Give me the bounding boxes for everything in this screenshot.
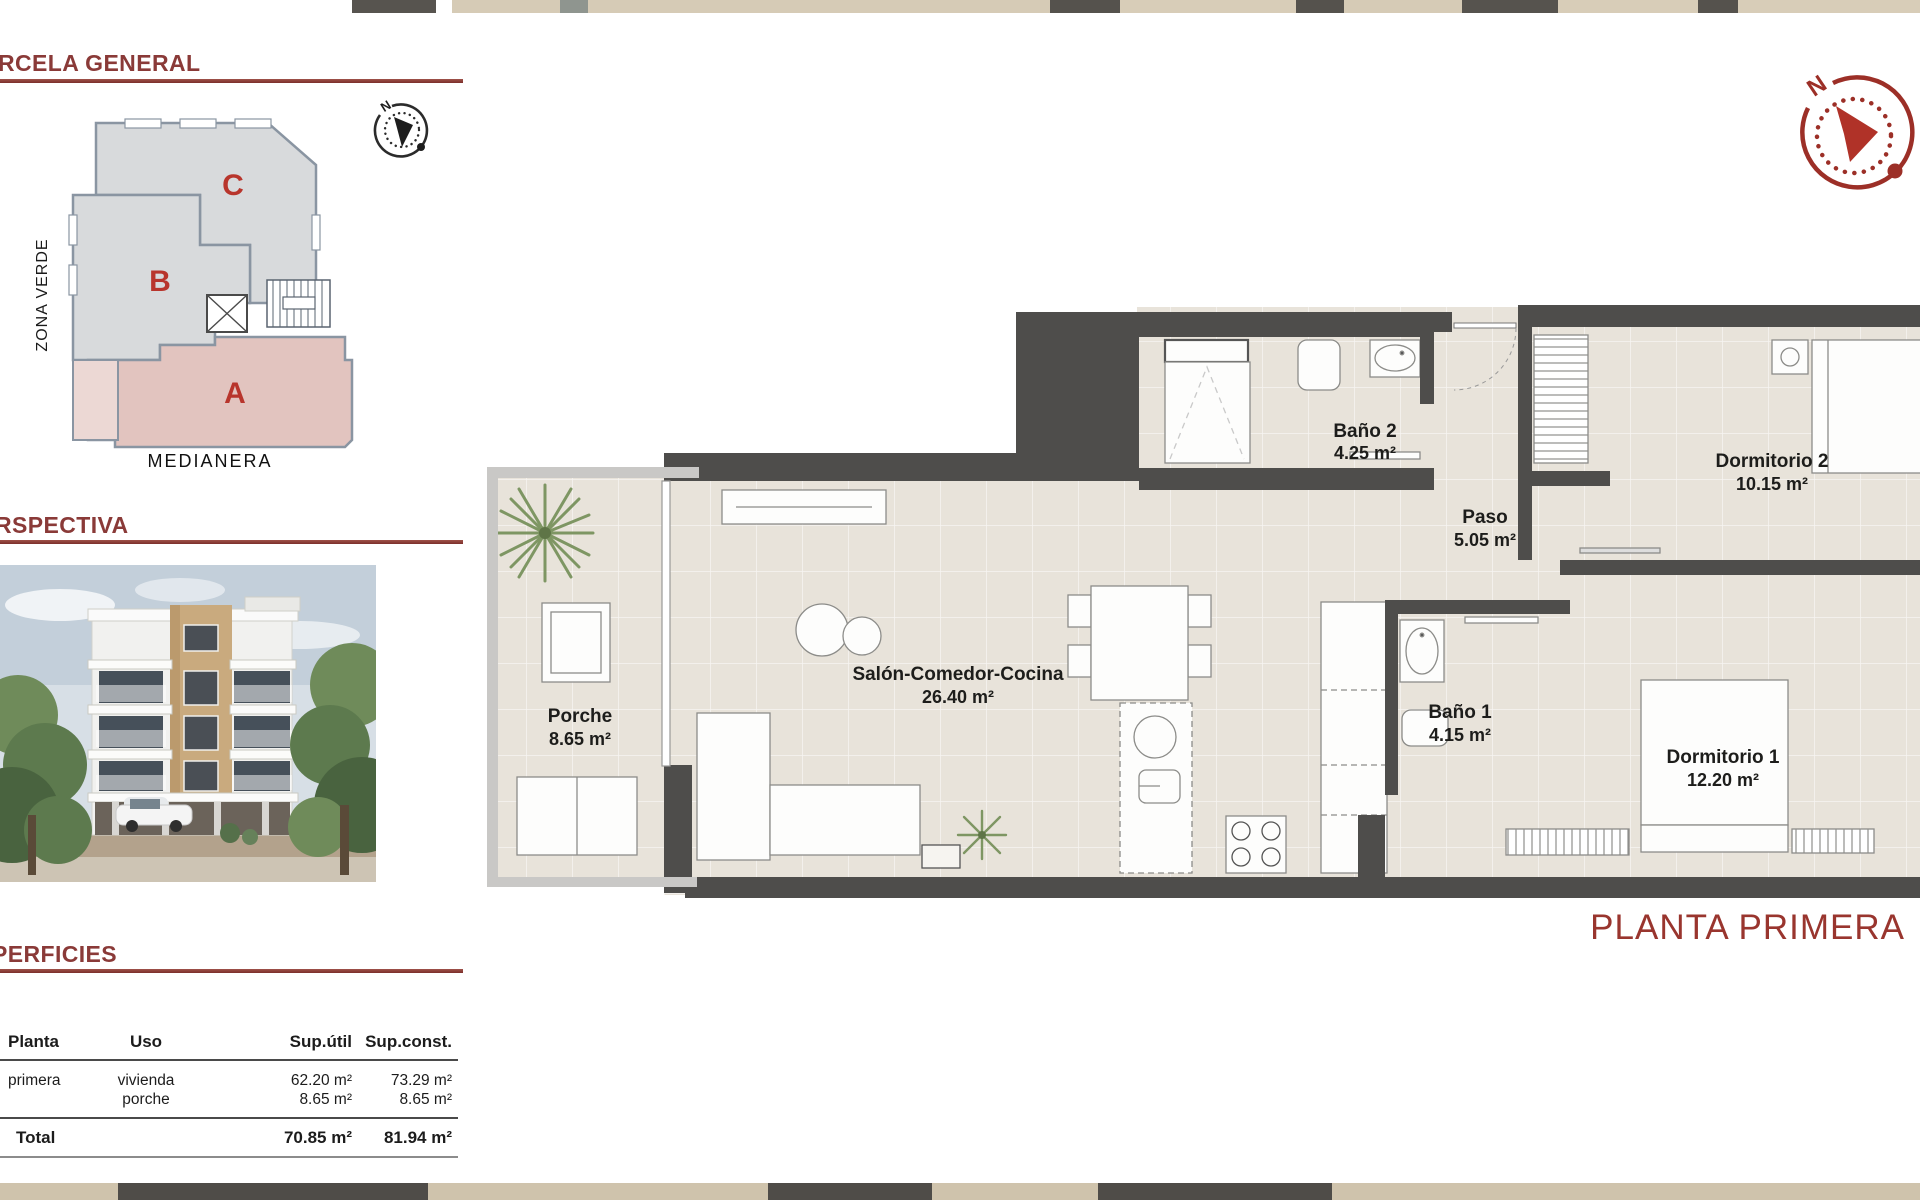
sideboard [722, 490, 886, 524]
table-row: primera vivienda 62.20 m² 73.29 m² [0, 1061, 458, 1090]
divider-perspectiva [0, 540, 463, 544]
section-title-parcela-general: RCELA GENERAL [0, 50, 200, 77]
total-sup-const: 81.94 m² [352, 1128, 455, 1148]
superficies-table: Planta Uso Sup.útil Sup.const. primera v… [0, 1032, 458, 1158]
bath2-shower [1165, 362, 1250, 463]
bath2-cabinet [1165, 340, 1248, 362]
divider-superficies [0, 969, 463, 973]
bottom-edge-plan-sliver [0, 1183, 1920, 1200]
cell-sup-const: 73.29 m² [352, 1071, 455, 1090]
section-title-perspectiva: RSPECTIVA [0, 512, 129, 539]
room-label-paso: Paso [1462, 507, 1507, 528]
cell-uso: vivienda [90, 1071, 202, 1090]
photo-building [88, 597, 300, 835]
site-elevator [207, 295, 247, 332]
site-window [235, 119, 271, 128]
room-area-bath2: 4.25 m² [1334, 443, 1396, 463]
site-window [312, 215, 320, 250]
bath1-towel-rail [1465, 617, 1538, 623]
bedroom1-window [1792, 829, 1874, 853]
room-label-bath2: Baño 2 [1333, 421, 1396, 442]
brochure-page: RCELA GENERAL [0, 0, 1920, 1200]
col-header-sup-util: Sup.útil [202, 1032, 352, 1052]
total-spacer [90, 1128, 202, 1148]
porche-palm-tree [497, 485, 593, 581]
site-block-a-wing [73, 360, 118, 440]
bedroom2-nightstand [1772, 340, 1808, 374]
room-label-porche: Porche [548, 706, 612, 727]
doormat [922, 845, 960, 868]
site-window [69, 265, 77, 295]
wardrobe [1534, 335, 1588, 463]
salon-plant [958, 811, 1006, 859]
porche-lounge [517, 777, 637, 855]
round-table [796, 604, 848, 656]
top-edge-plan-sliver [0, 0, 1920, 13]
room-area-salon: 26.40 m² [922, 687, 994, 707]
perspective-photo [0, 565, 376, 882]
terrace-slider [662, 481, 670, 766]
table-header-row: Planta Uso Sup.útil Sup.const. [0, 1032, 458, 1061]
site-label-c: C [222, 169, 244, 202]
col-header-planta: Planta [0, 1032, 90, 1052]
col-header-uso: Uso [90, 1032, 202, 1052]
bath1-sink [1400, 620, 1444, 682]
room-area-bath1: 4.15 m² [1429, 725, 1491, 745]
compass-north-label: N [1802, 70, 1831, 102]
col-header-sup-const: Sup.const. [352, 1032, 455, 1052]
site-compass-north-label: N [378, 97, 394, 115]
room-label-bedroom2: Dormitorio 2 [1716, 451, 1829, 472]
north-compass-icon: N [1788, 68, 1920, 200]
site-compass-icon: N [375, 97, 427, 156]
site-window [180, 119, 216, 128]
round-table [843, 617, 881, 655]
room-area-porche: 8.65 m² [549, 729, 611, 749]
floorplan: Porche 8.65 m² Salón-Comedor-Cocina 26.4… [480, 295, 1920, 910]
plan-title: PLANTA PRIMERA [1460, 908, 1905, 948]
table-total-row: Total 70.85 m² 81.94 m² [0, 1119, 458, 1158]
cell-sup-util: 62.20 m² [202, 1071, 352, 1090]
site-label-b: B [149, 265, 171, 298]
room-label-salon: Salón-Comedor-Cocina [852, 664, 1064, 685]
site-plan: C B A ZONA VERDE MEDIANERA N [30, 95, 445, 475]
bath2-toilet [1298, 340, 1340, 390]
stove [1226, 816, 1286, 873]
room-label-bath1: Baño 1 [1428, 702, 1492, 723]
room-area-bedroom2: 10.15 m² [1736, 474, 1808, 494]
room-area-bedroom1: 12.20 m² [1687, 770, 1759, 790]
bath2-sink [1370, 340, 1420, 377]
shelf [1580, 548, 1660, 553]
site-window [69, 215, 77, 245]
site-stairs [267, 280, 330, 327]
site-label-a: A [224, 377, 246, 410]
medianera-label: MEDIANERA [147, 451, 272, 471]
site-window [125, 119, 161, 128]
cell-uso: porche [90, 1090, 202, 1109]
zona-verde-label: ZONA VERDE [34, 238, 51, 351]
table-row: porche 8.65 m² 8.65 m² [0, 1090, 458, 1109]
room-label-bedroom1: Dormitorio 1 [1667, 747, 1780, 768]
bedroom1-window [1506, 829, 1629, 855]
section-title-superficies: PERFICIES [0, 941, 117, 968]
total-label: Total [0, 1128, 90, 1148]
cell-planta: primera [0, 1071, 90, 1090]
cell-planta [0, 1090, 90, 1109]
cell-sup-const: 8.65 m² [352, 1090, 455, 1109]
total-sup-util: 70.85 m² [202, 1128, 352, 1148]
divider-parcela [0, 79, 463, 83]
room-area-paso: 5.05 m² [1454, 530, 1516, 550]
porche-table [542, 603, 610, 682]
cell-sup-util: 8.65 m² [202, 1090, 352, 1109]
kitchen-counter [1120, 703, 1192, 873]
